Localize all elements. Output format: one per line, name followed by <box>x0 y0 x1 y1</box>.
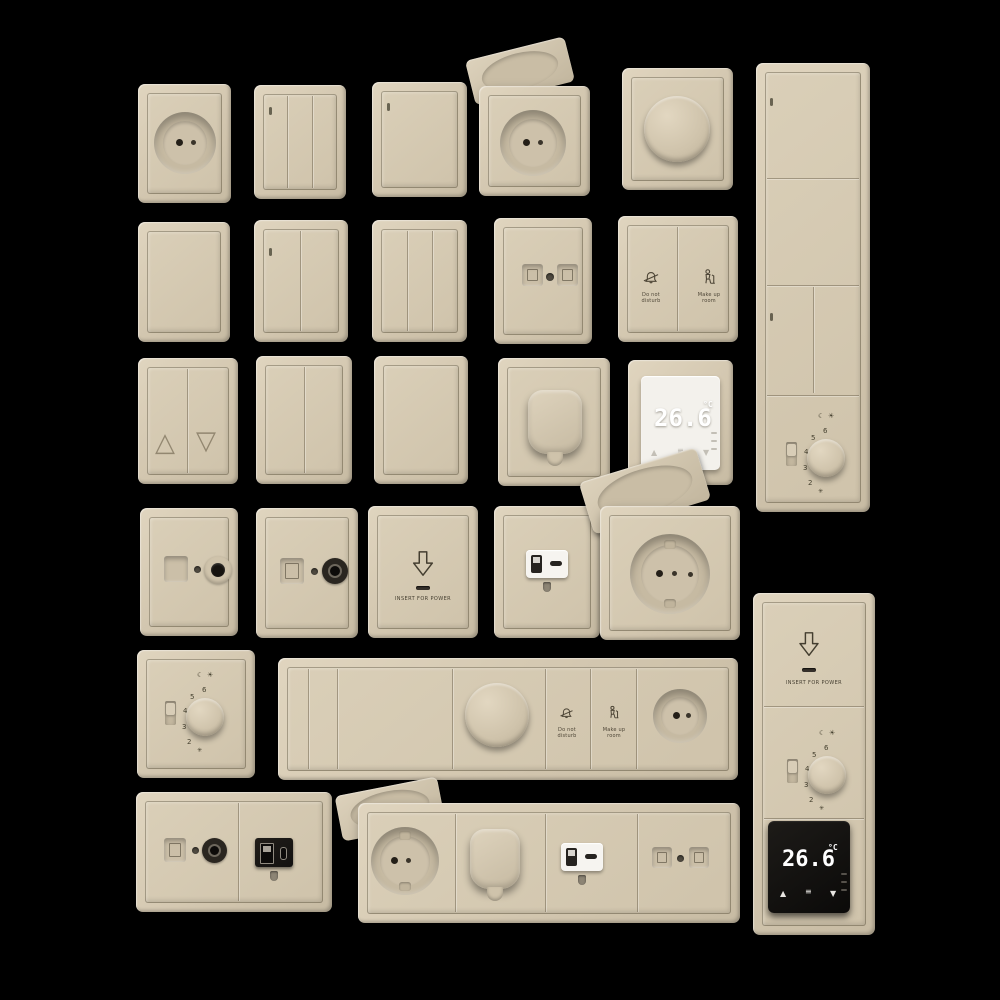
vertical-combo-panel-top: ☾ ☀ 6 5 4 3 2 ✳ <box>756 63 870 512</box>
switch-face <box>381 229 458 333</box>
center-dot <box>546 273 554 281</box>
blind-down-icon: ▽ <box>196 428 216 454</box>
switch-face <box>265 365 343 475</box>
switch-indicator <box>269 248 272 256</box>
dial-number-3: 3 <box>803 464 807 472</box>
make-up-room-label: Make uproom <box>686 292 732 305</box>
keystone-port <box>522 264 543 286</box>
dimmer-knob <box>644 96 710 162</box>
center-dot <box>677 855 684 862</box>
socket-pin-left <box>523 139 530 146</box>
combo-plate <box>358 803 740 923</box>
frost-icon: ✳ <box>818 488 823 495</box>
switch-1gang-blank-1 <box>138 222 230 342</box>
dial-number-5: 5 <box>190 693 194 701</box>
temp-down-button: ▼ <box>703 448 709 457</box>
tv-socket-1 <box>140 508 238 636</box>
socket-pin-right <box>686 713 691 718</box>
rocker-divider <box>432 231 433 331</box>
do-not-disturb-label: Do notdisturb <box>546 727 588 740</box>
switch-3gang-1 <box>254 85 346 199</box>
dial-number-2: 2 <box>187 738 191 746</box>
thermostat-knob <box>807 439 845 477</box>
center-dot <box>192 847 199 854</box>
module-divider <box>452 669 453 769</box>
rocker-divider <box>300 231 301 331</box>
menu-button: ≡ <box>805 887 812 896</box>
thermostat-knob <box>186 698 224 736</box>
make-up-room-icon <box>699 267 719 291</box>
hotel-service-panel: Do notdisturb Make uproom <box>618 216 738 342</box>
schuko-bottom <box>380 836 430 886</box>
coax-ring <box>328 564 342 578</box>
keystone-recess <box>164 556 188 582</box>
toggle-slider <box>788 761 797 773</box>
temp-up-button: ▲ <box>651 448 657 457</box>
socket-pin-aux <box>688 572 693 577</box>
insert-for-power-label: INSERT FOR POWER <box>368 596 478 602</box>
switch-1gang-blank-2 <box>374 356 468 484</box>
make-up-room-label: Make uproom <box>593 727 635 740</box>
keycard-holder-1: INSERT FOR POWER <box>368 506 478 638</box>
switch-face <box>381 91 458 188</box>
socket-pin-right <box>538 140 543 145</box>
earth-clip-bottom <box>399 882 411 891</box>
usb-charger-white-1 <box>494 506 600 638</box>
moon-icon: ☾ <box>197 671 203 679</box>
blind-switch: △ ▽ <box>138 358 238 484</box>
switch-2gang-indicator <box>254 220 348 342</box>
module-divider <box>545 669 546 769</box>
sun-icon: ☀ <box>207 671 213 679</box>
socket-pin-left <box>176 139 183 146</box>
dial-number-6: 6 <box>824 744 828 752</box>
tv-data-socket-1 <box>256 508 358 638</box>
earth-clip-top <box>664 540 676 549</box>
usb-a-port <box>260 843 274 864</box>
temp-down-button: ▼ <box>830 889 836 898</box>
usb-c-port <box>585 854 597 859</box>
make-up-room-icon <box>605 704 622 725</box>
earth-clip-bottom <box>664 599 676 608</box>
usb-module-black <box>255 838 293 867</box>
thermostat-toggle <box>786 442 797 466</box>
rocker-divider <box>187 369 188 473</box>
module-divider <box>767 285 859 286</box>
frost-icon: ✳ <box>819 805 824 812</box>
do-not-disturb-label: Do notdisturb <box>628 292 674 305</box>
switch-face <box>147 231 221 333</box>
switch-indicator <box>770 313 773 321</box>
thermostat-toggle <box>787 759 798 783</box>
card-slot <box>416 586 430 590</box>
coax-connector <box>204 556 232 584</box>
side-button <box>711 440 717 442</box>
keystone-port <box>689 847 709 868</box>
toggle-slider <box>787 444 796 456</box>
rocker-divider <box>312 96 313 188</box>
screw <box>270 871 278 881</box>
keystone-inner <box>562 269 573 281</box>
dimmer-knob <box>465 683 529 747</box>
usb-a-tongue <box>568 850 575 856</box>
keystone-port <box>280 558 304 584</box>
dial-number-3: 3 <box>182 723 186 731</box>
switch-2gang-2 <box>256 356 352 484</box>
keystone-port <box>557 264 578 286</box>
usb-insert <box>526 550 568 578</box>
switch-3gang-2 <box>372 220 467 342</box>
button-divider <box>677 227 678 331</box>
rocker-divider <box>337 669 338 769</box>
keystone-port <box>164 838 186 862</box>
rocker-divider <box>308 669 309 769</box>
dial-number-2: 2 <box>809 796 813 804</box>
switch-indicator <box>387 103 390 111</box>
module-divider <box>455 814 456 912</box>
keystone-inner <box>285 563 299 579</box>
module-divider <box>238 803 239 901</box>
side-button <box>711 432 717 434</box>
socket-bottom <box>509 119 557 167</box>
rocker-divider <box>813 287 814 393</box>
coax-hole <box>211 563 225 577</box>
coax-connector-black <box>202 838 227 863</box>
rocker-divider <box>287 96 288 188</box>
cable-hood <box>470 829 520 889</box>
socket-pin-left <box>673 712 680 719</box>
keystone-port <box>652 847 672 868</box>
socket-pin-right <box>191 140 196 145</box>
keystone-inner <box>657 852 667 863</box>
thermostat-knob <box>808 756 846 794</box>
dial-number-2: 2 <box>808 479 812 487</box>
thermostat-dial: ☾ ☀ 6 5 4 3 2 ✳ <box>764 400 864 500</box>
screw <box>543 582 551 592</box>
cable-hood <box>528 390 582 454</box>
socket-plate <box>479 86 590 196</box>
center-dot <box>194 566 201 573</box>
sun-icon: ☀ <box>828 412 834 420</box>
card-slot <box>802 668 816 672</box>
button-divider <box>590 669 591 769</box>
usb-c-port <box>280 847 287 860</box>
module-divider <box>767 178 859 179</box>
schuko-plate <box>600 506 740 640</box>
blind-face <box>147 367 229 475</box>
cable-outlet-1 <box>498 358 610 486</box>
dial-number-3: 3 <box>804 781 808 789</box>
switch-1gang-indicator-1 <box>372 82 467 197</box>
insert-arrow-icon <box>406 550 440 582</box>
dial-number-5: 5 <box>812 751 816 759</box>
dial-number-5: 5 <box>811 434 815 442</box>
switch-indicator <box>770 98 773 106</box>
insert-arrow-icon <box>793 631 825 662</box>
rocker-divider <box>407 231 408 331</box>
temperature-unit: °C <box>828 843 838 852</box>
keystone-inner <box>527 269 538 281</box>
blind-up-icon: △ <box>155 430 175 456</box>
socket-bottom <box>163 121 207 165</box>
toggle-slider <box>166 703 175 715</box>
horizontal-combo-panel-1: Do notdisturb Make uproom <box>278 658 738 780</box>
thermostat-dial: ☾ ☀ 6 5 4 3 2 ✳ <box>143 659 243 759</box>
bell-crossed-icon <box>558 705 575 726</box>
module-divider <box>764 706 864 707</box>
sun-icon: ☀ <box>829 729 835 737</box>
socket-round-1 <box>138 84 231 203</box>
module-divider <box>767 395 859 396</box>
rotary-dimmer-1 <box>622 68 733 190</box>
thermostat-toggle <box>165 701 176 725</box>
keystone-inner <box>169 843 181 857</box>
keystone-inner <box>694 852 704 863</box>
bell-crossed-icon <box>641 268 661 292</box>
thermostat-rotary-square: ☾ ☀ 6 5 4 3 2 ✳ <box>137 650 255 778</box>
frost-icon: ✳ <box>197 747 202 754</box>
center-dot <box>311 568 318 575</box>
dual-frame-tv-usb <box>136 792 332 912</box>
data-socket-dual-1 <box>494 218 592 344</box>
coax-ring <box>208 844 221 857</box>
insert-for-power-label: INSERT FOR POWER <box>753 680 875 686</box>
coax-connector-black <box>322 558 348 584</box>
switch-face <box>263 229 339 333</box>
module-divider <box>545 814 546 912</box>
usb-insert <box>561 843 603 871</box>
socket-pin-right <box>406 858 411 863</box>
socket-bottom <box>661 697 699 735</box>
dial-number-6: 6 <box>823 427 827 435</box>
vertical-combo-panel-bottom: INSERT FOR POWER ☾ ☀ 6 5 4 3 2 ✳ 26.6 °C… <box>753 593 875 935</box>
temp-up-button: ▲ <box>780 889 786 898</box>
side-button <box>841 873 847 875</box>
switch-face <box>383 365 459 475</box>
usb-a-tongue <box>263 846 271 852</box>
module-divider <box>636 669 637 769</box>
switch-indicator <box>269 107 272 115</box>
usb-a-port <box>531 555 542 573</box>
screw <box>578 875 586 885</box>
earth-clip-top <box>399 831 411 840</box>
socket-pin-left <box>656 570 663 577</box>
socket-pin-right <box>672 571 677 576</box>
thermostat-digital-black: 26.6 °C ▲ ≡ ▼ <box>768 821 850 913</box>
thermostat-dial: ☾ ☀ 6 5 4 3 2 ✳ <box>765 717 865 817</box>
moon-icon: ☾ <box>819 729 825 737</box>
dial-number-6: 6 <box>202 686 206 694</box>
side-button <box>841 881 847 883</box>
usb-c-port <box>550 561 562 566</box>
module-divider <box>637 814 638 912</box>
usb-a-tongue <box>533 557 540 563</box>
side-button <box>711 448 717 450</box>
moon-icon: ☾ <box>818 412 824 420</box>
usb-a-port <box>566 848 577 866</box>
module-divider <box>764 818 864 819</box>
socket-pin-left <box>391 857 398 864</box>
temperature-unit: °C <box>703 400 713 409</box>
switch-face <box>263 94 337 190</box>
side-button <box>841 889 847 891</box>
product-render-canvas: ☾ ☀ 6 5 4 3 2 ✳ <box>0 0 1000 1000</box>
rocker-divider <box>304 367 305 473</box>
